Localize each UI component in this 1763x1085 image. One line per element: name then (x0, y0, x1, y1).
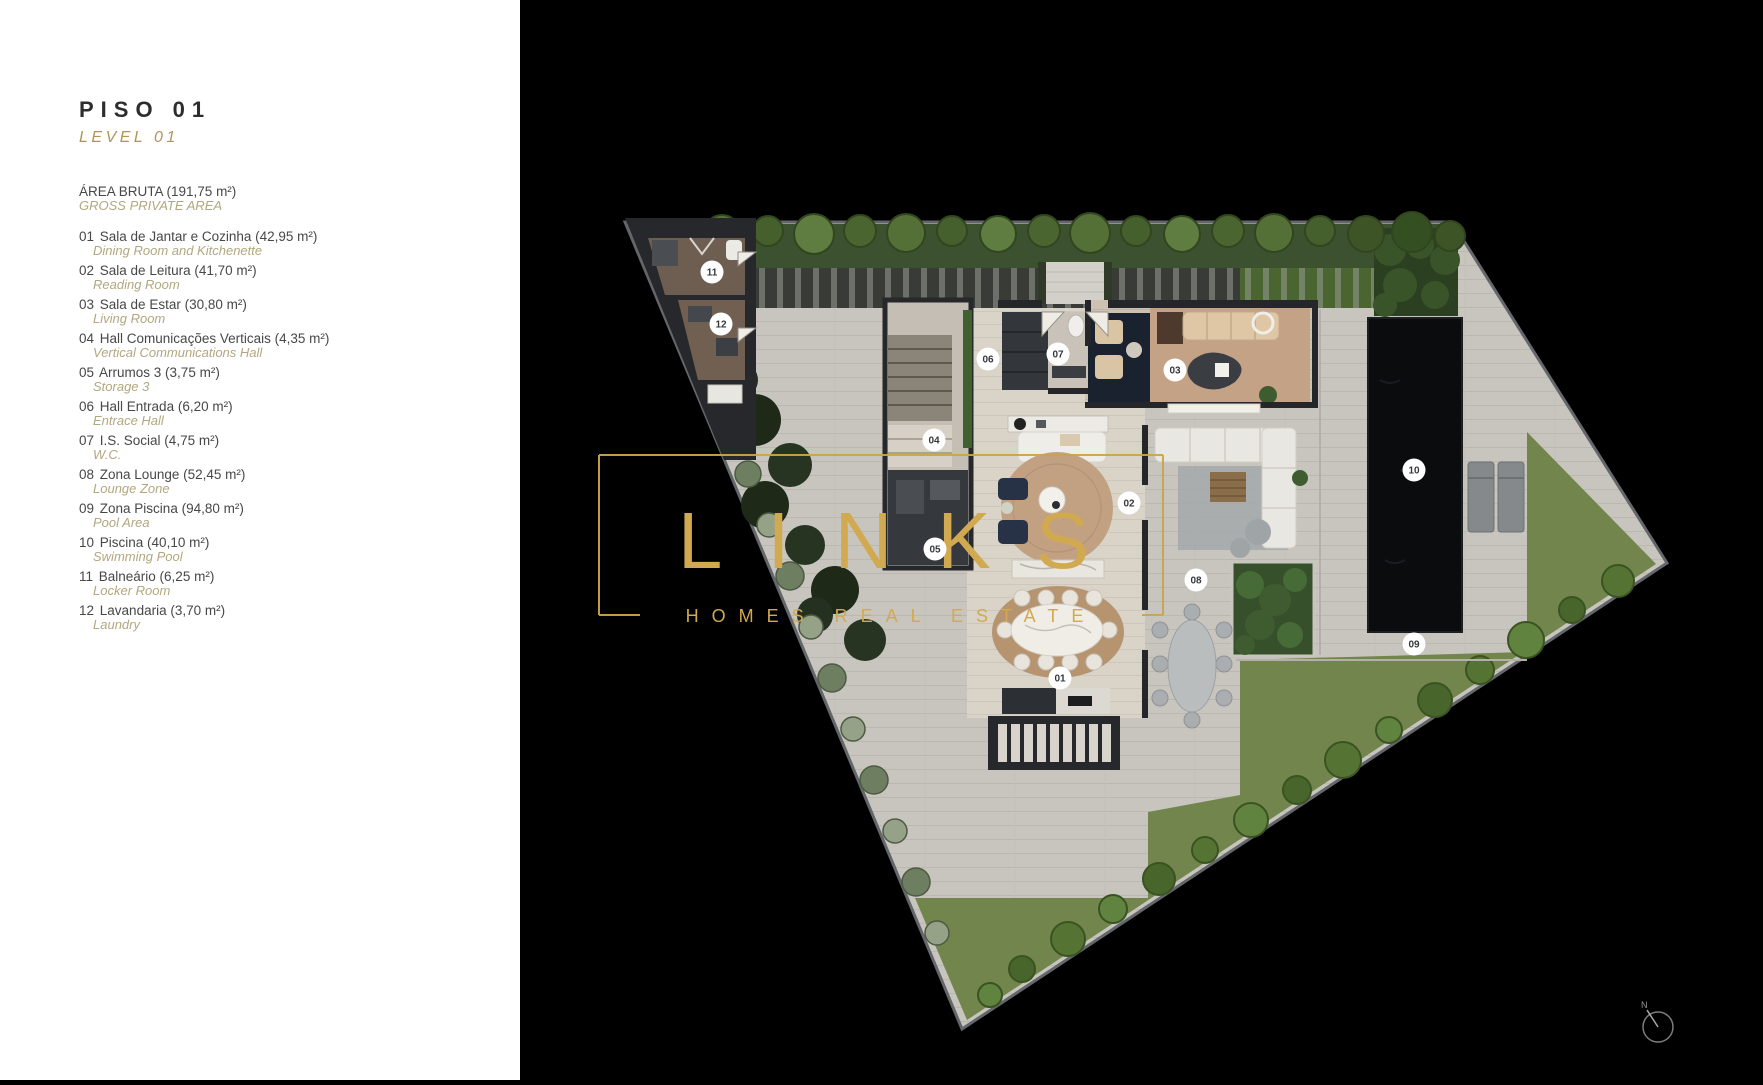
legend-item-en: W.C. (79, 448, 329, 462)
sun-lounger (1498, 462, 1524, 532)
svg-text:02: 02 (1123, 499, 1135, 510)
legend-item-number: 11 (79, 569, 93, 584)
plant (1259, 386, 1277, 404)
room-marker: 06 (977, 348, 1000, 371)
svg-text:08: 08 (1190, 576, 1202, 587)
wing-northwest (625, 218, 756, 460)
room-marker: 07 (1047, 343, 1070, 366)
legend-item-en: Swimming Pool (79, 550, 329, 564)
wc-vanity (1052, 366, 1086, 378)
brand-tagline: HOMES REAL ESTATE (686, 606, 1097, 626)
legend-item-number: 05 (79, 365, 94, 380)
compass-north-label: N (1641, 1000, 1648, 1010)
legend-item-number: 06 (79, 399, 94, 414)
room-marker: 09 (1403, 633, 1426, 656)
svg-text:03: 03 (1169, 366, 1181, 377)
shower (652, 240, 678, 266)
gross-area-block: ÁREA BRUTA (191,75 m²) GROSS PRIVATE ARE… (79, 184, 236, 213)
legend-item-pt: 03 Sala de Estar (30,80 m²) (79, 297, 329, 312)
legend-item-pt: 01 Sala de Jantar e Cozinha (42,95 m²) (79, 229, 329, 244)
page-title: PISO 01 (79, 97, 211, 123)
gross-area-en: GROSS PRIVATE AREA (79, 199, 236, 213)
svg-text:11: 11 (707, 268, 718, 279)
legend-item: 10 Piscina (40,10 m²)Swimming Pool (79, 535, 329, 564)
legend-item-pt: 05 Arrumos 3 (3,75 m²) (79, 365, 329, 380)
svg-text:01: 01 (1054, 674, 1066, 685)
svg-text:12: 12 (715, 320, 727, 331)
svg-text:06: 06 (982, 355, 994, 366)
room-legend: 01 Sala de Jantar e Cozinha (42,95 m²)Di… (79, 229, 329, 637)
floor-plan-svg: LINKS HOMES REAL ESTATE 0102030405060708… (520, 0, 1763, 1080)
legend-item: 06 Hall Entrada (6,20 m²)Entrace Hall (79, 399, 329, 428)
svg-text:10: 10 (1408, 466, 1420, 477)
laundry-machine (716, 338, 738, 356)
green-wall (963, 310, 972, 448)
legend-item-en: Living Room (79, 312, 329, 326)
room-marker: 12 (710, 313, 733, 336)
wood-coffee-table (1210, 472, 1246, 502)
legend-item-en: Entrace Hall (79, 414, 329, 428)
legend-item-en: Laundry (79, 618, 329, 632)
svg-text:04: 04 (928, 436, 940, 447)
legend-item-pt: 12 Lavandaria (3,70 m²) (79, 603, 329, 618)
floor-plan-canvas: LINKS HOMES REAL ESTATE 0102030405060708… (520, 0, 1763, 1080)
room-marker: 03 (1164, 359, 1187, 382)
legend-item-number: 01 (79, 229, 94, 244)
room-marker: 08 (1185, 569, 1208, 592)
page-subtitle: LEVEL 01 (79, 129, 179, 147)
legend-item-number: 03 (79, 297, 94, 312)
toilet (1068, 315, 1084, 337)
pouf (1230, 538, 1250, 558)
legend-item-en: Pool Area (79, 516, 329, 530)
legend-item: 09 Zona Piscina (94,80 m²)Pool Area (79, 501, 329, 530)
legend-item-pt: 11 Balneário (6,25 m²) (79, 569, 329, 584)
legend-item-pt: 04 Hall Comunicações Verticais (4,35 m²) (79, 331, 329, 346)
sideboard (1157, 312, 1183, 344)
legend-item-en: Storage 3 (79, 380, 329, 394)
legend-item-number: 09 (79, 501, 94, 516)
legend-item-number: 08 (79, 467, 94, 482)
legend-item-en: Lounge Zone (79, 482, 329, 496)
legend-item-pt: 02 Sala de Leitura (41,70 m²) (79, 263, 329, 278)
legend-item-number: 02 (79, 263, 94, 278)
legend-item: 02 Sala de Leitura (41,70 m²)Reading Roo… (79, 263, 329, 292)
compass-icon: N (1641, 1000, 1673, 1042)
legend-item: 08 Zona Lounge (52,45 m²)Lounge Zone (79, 467, 329, 496)
cabinet (708, 385, 742, 403)
legend-item: 01 Sala de Jantar e Cozinha (42,95 m²)Di… (79, 229, 329, 258)
planter-box (1232, 562, 1314, 656)
legend-item-pt: 09 Zona Piscina (94,80 m²) (79, 501, 329, 516)
legend-item: 05 Arrumos 3 (3,75 m²)Storage 3 (79, 365, 329, 394)
svg-text:05: 05 (929, 545, 941, 556)
legend-item-en: Vertical Communications Hall (79, 346, 329, 360)
entrance-walkway (1038, 262, 1112, 304)
legend-item: 07 I.S. Social (4,75 m²)W.C. (79, 433, 329, 462)
legend-item: 03 Sala de Estar (30,80 m²)Living Room (79, 297, 329, 326)
pouf (1245, 519, 1271, 545)
svg-text:09: 09 (1408, 640, 1420, 651)
room-marker: 10 (1403, 459, 1426, 482)
room-marker: 02 (1118, 492, 1141, 515)
svg-text:07: 07 (1052, 350, 1064, 361)
room-marker: 05 (924, 538, 947, 561)
legend-item-pt: 07 I.S. Social (4,75 m²) (79, 433, 329, 448)
legend-item-number: 07 (79, 433, 94, 448)
legend-item-pt: 08 Zona Lounge (52,45 m²) (79, 467, 329, 482)
outdoor-table (1168, 620, 1216, 712)
room-marker: 11 (701, 261, 724, 284)
legend-item: 11 Balneário (6,25 m²)Locker Room (79, 569, 329, 598)
legend-panel: PISO 01 LEVEL 01 ÁREA BRUTA (191,75 m²) … (0, 0, 520, 1080)
sun-lounger (1468, 462, 1494, 532)
legend-item: 04 Hall Comunicações Verticais (4,35 m²)… (79, 331, 329, 360)
legend-item-en: Dining Room and Kitchenette (79, 244, 329, 258)
legend-item-number: 04 (79, 331, 94, 346)
brand-name: LINKS (678, 496, 1134, 585)
legend-item-pt: 06 Hall Entrada (6,20 m²) (79, 399, 329, 414)
gross-area-pt: ÁREA BRUTA (191,75 m²) (79, 184, 236, 199)
legend-item-number: 10 (79, 535, 94, 550)
plant (1292, 470, 1308, 486)
legend-item-en: Reading Room (79, 278, 329, 292)
legend-item-pt: 10 Piscina (40,10 m²) (79, 535, 329, 550)
legend-item-en: Locker Room (79, 584, 329, 598)
legend-item-number: 12 (79, 603, 94, 618)
room-marker: 04 (923, 429, 946, 452)
legend-item: 12 Lavandaria (3,70 m²)Laundry (79, 603, 329, 632)
console (1168, 404, 1260, 413)
laundry-machine (688, 306, 712, 322)
room-marker: 01 (1049, 667, 1072, 690)
